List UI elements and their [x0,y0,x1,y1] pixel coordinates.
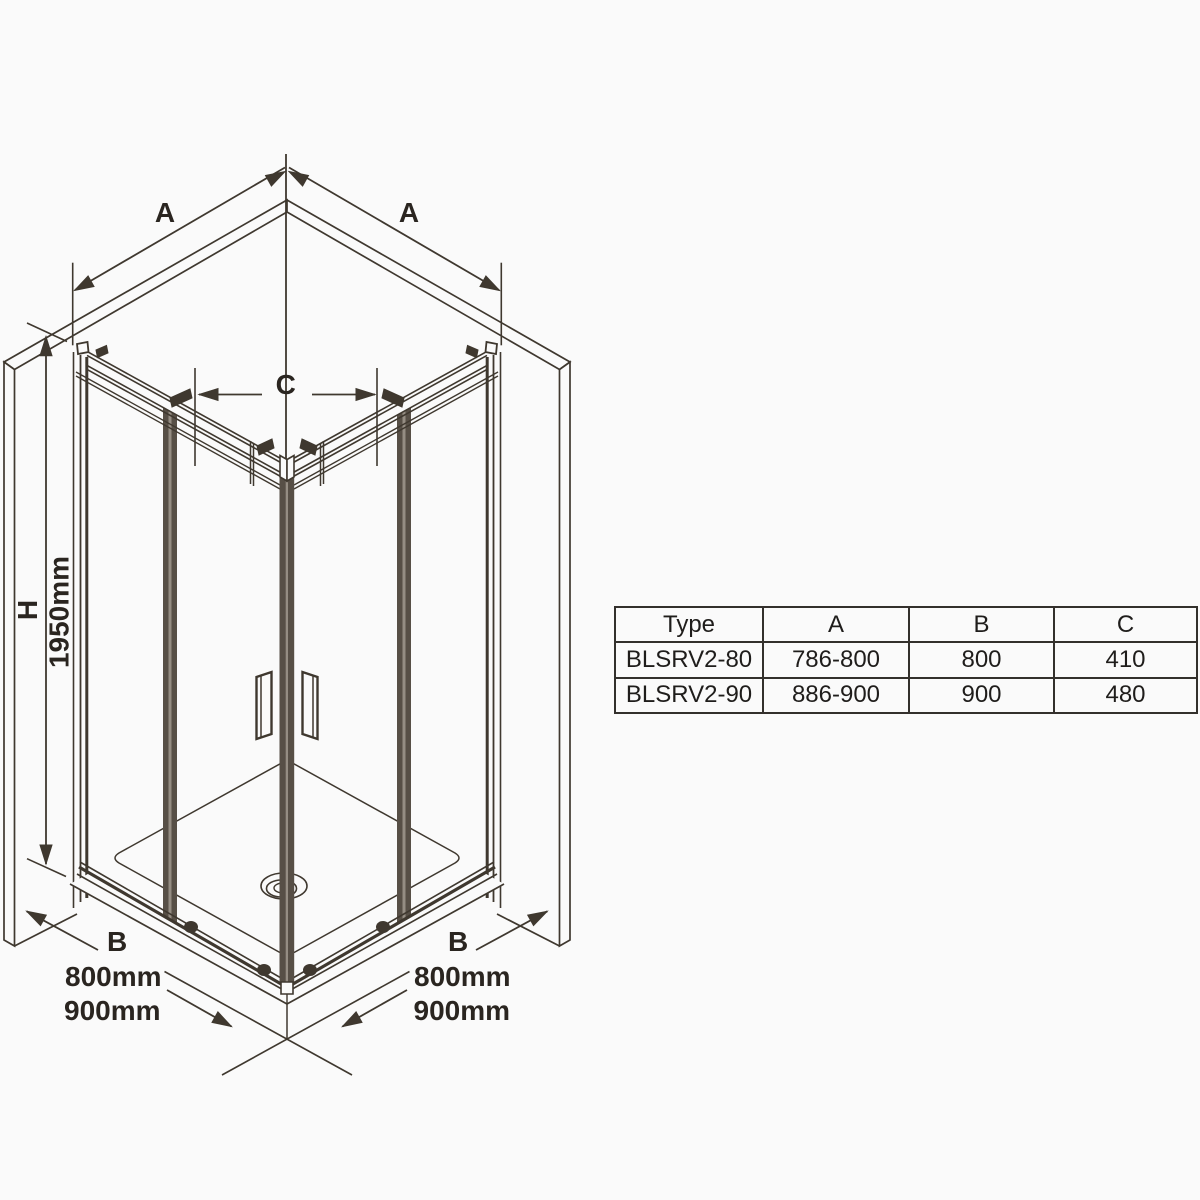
svg-text:A: A [155,197,175,228]
svg-text:800mm: 800mm [65,961,162,992]
svg-text:800mm: 800mm [414,961,511,992]
svg-text:C: C [276,369,296,400]
svg-text:B: B [107,926,127,957]
svg-text:H: H [12,600,43,620]
svg-text:A: A [399,197,419,228]
svg-text:900mm: 900mm [414,995,511,1026]
svg-text:B: B [448,926,468,957]
svg-text:1950mm: 1950mm [44,556,75,668]
svg-text:900mm: 900mm [64,995,161,1026]
